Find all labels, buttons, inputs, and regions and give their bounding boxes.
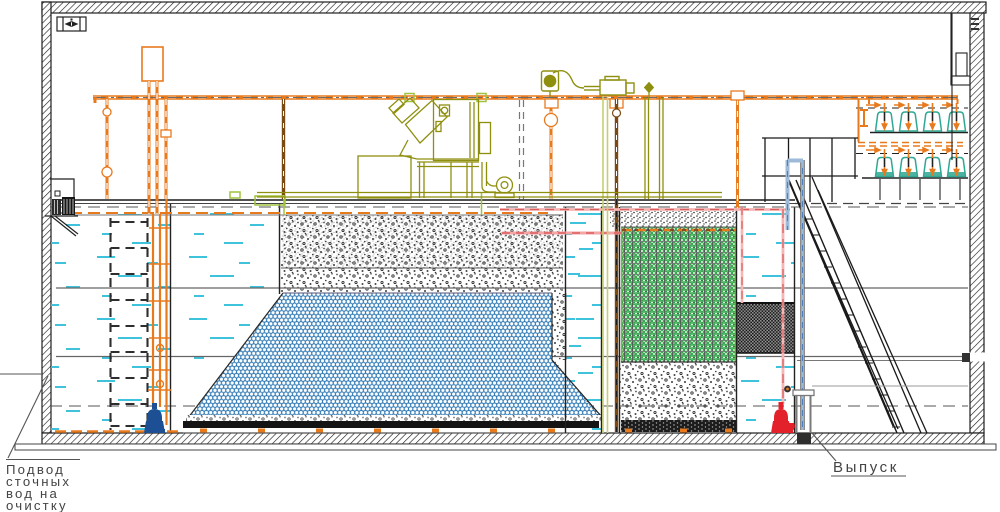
svg-text:очистку: очистку <box>6 498 68 512</box>
svg-text:Выпуск: Выпуск <box>833 459 899 476</box>
